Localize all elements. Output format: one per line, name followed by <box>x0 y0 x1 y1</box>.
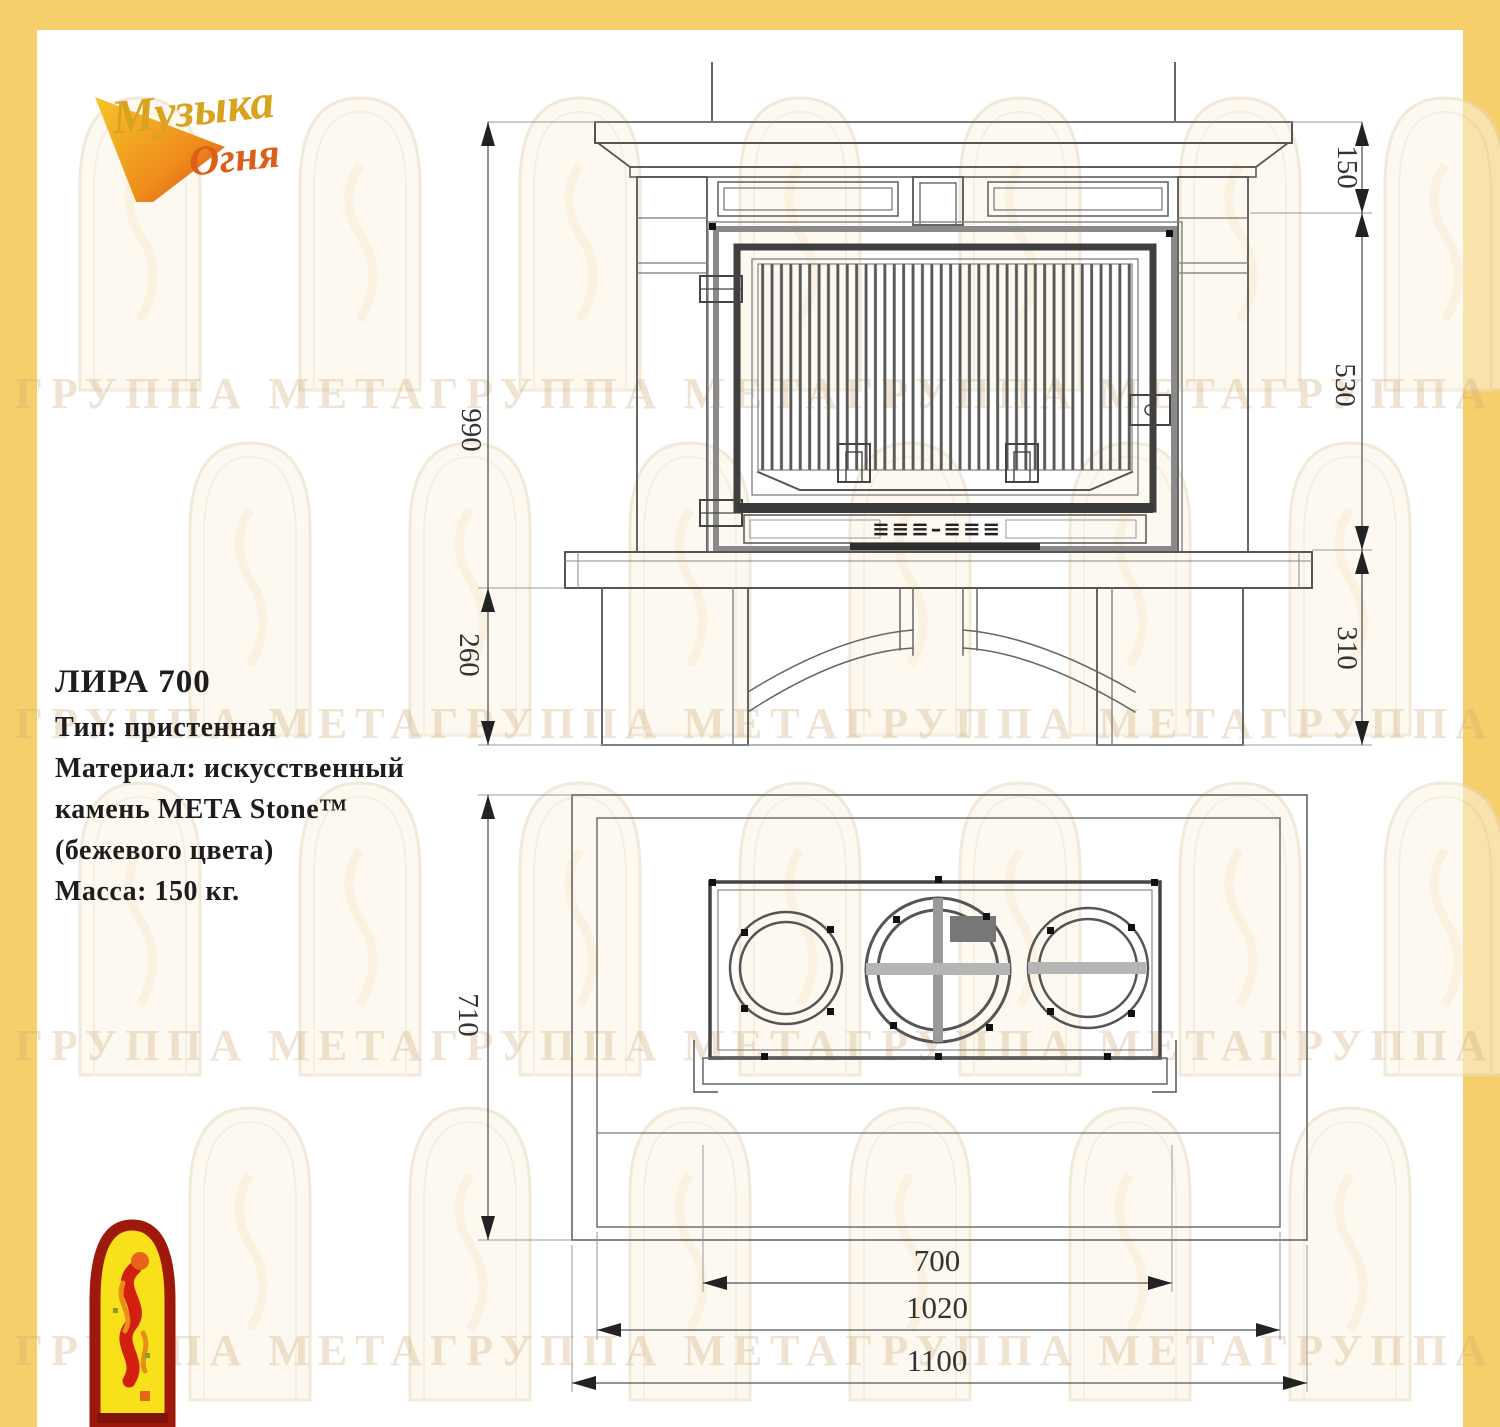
door-bottom-rail <box>737 503 1153 513</box>
spec-type: Тип: пристенная <box>55 707 485 748</box>
spec-block: ЛИРА 700 Тип: пристенная Материал: искус… <box>55 662 485 912</box>
dim-label-1020: 1020 <box>906 1290 968 1325</box>
vent-glyphs: ≡≡≡–≡≡≡ <box>872 517 1002 541</box>
cornice <box>598 143 1288 167</box>
front-elevation: ≡≡≡–≡≡≡ <box>565 63 1312 745</box>
dim-label-1100: 1100 <box>907 1343 968 1378</box>
hearth-shelf <box>565 552 1312 588</box>
mantel-shelf <box>595 122 1292 143</box>
door-slats <box>758 264 1132 470</box>
base-leg-left <box>602 588 748 745</box>
brand-logo: Музыка Огня <box>85 52 355 202</box>
spec-material-3: (бежевого цвета) <box>55 830 485 871</box>
frame-bolt <box>1166 230 1173 237</box>
spec-material-2: камень МЕТА Stone™ <box>55 789 485 830</box>
dim-label-990: 990 <box>455 408 487 452</box>
brand-line2: Огня <box>187 131 282 186</box>
emblem-base <box>97 1413 168 1423</box>
dim-label-700: 700 <box>914 1243 961 1278</box>
spec-material-1: Материал: искусственный <box>55 748 485 789</box>
spec-sheet-page: { "brand": { "line1": "Музыка", "line2":… <box>0 0 1500 1427</box>
pillar-right <box>1178 177 1248 552</box>
spec-title: ЛИРА 700 <box>55 662 485 703</box>
dim-label-310: 310 <box>1331 626 1363 670</box>
base-arch <box>602 588 1243 745</box>
cornice-band <box>630 167 1256 177</box>
spec-mass: Масса: 150 кг. <box>55 871 485 912</box>
firebox-door <box>700 247 1170 526</box>
frieze-panel-right <box>988 182 1168 216</box>
frieze-panel-left <box>718 182 898 216</box>
dim-label-710: 710 <box>452 993 484 1037</box>
plan-view <box>572 795 1307 1240</box>
pillar-left <box>637 177 707 552</box>
dim-label-530: 530 <box>1329 363 1361 407</box>
base-leg-right <box>1097 588 1243 745</box>
chimney-flue-lines <box>712 63 1175 122</box>
frame-bolt <box>709 223 716 230</box>
dim-label-150: 150 <box>1331 145 1363 189</box>
plan-firebox-band <box>703 1058 1167 1084</box>
firebird-emblem <box>85 1213 181 1427</box>
ash-lip <box>758 472 1132 490</box>
keystone <box>913 177 963 225</box>
